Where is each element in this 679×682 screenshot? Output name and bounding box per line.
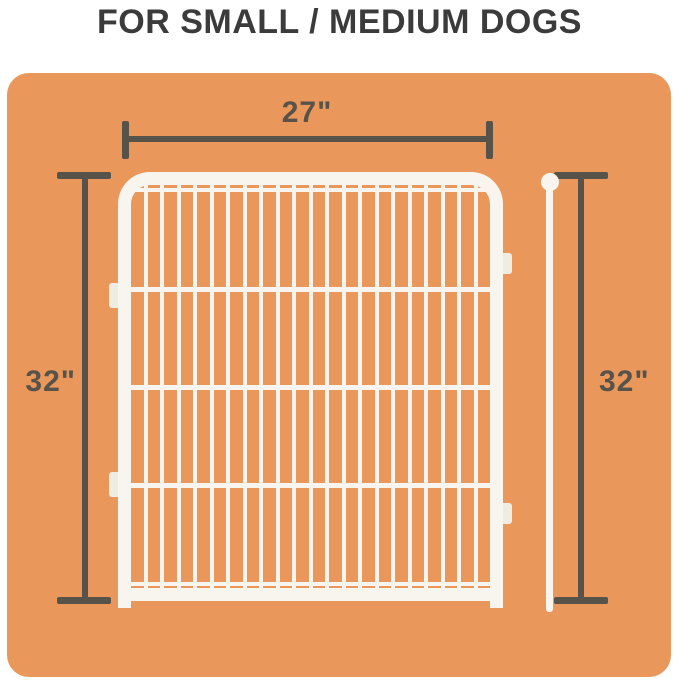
product-dimension-infographic: FOR SMALL / MEDIUM DOGS 27" 32" 32" — [0, 0, 679, 682]
pen-panel-illustration — [118, 172, 503, 612]
panel-frame — [118, 172, 503, 608]
page-title: FOR SMALL / MEDIUM DOGS — [0, 3, 679, 42]
